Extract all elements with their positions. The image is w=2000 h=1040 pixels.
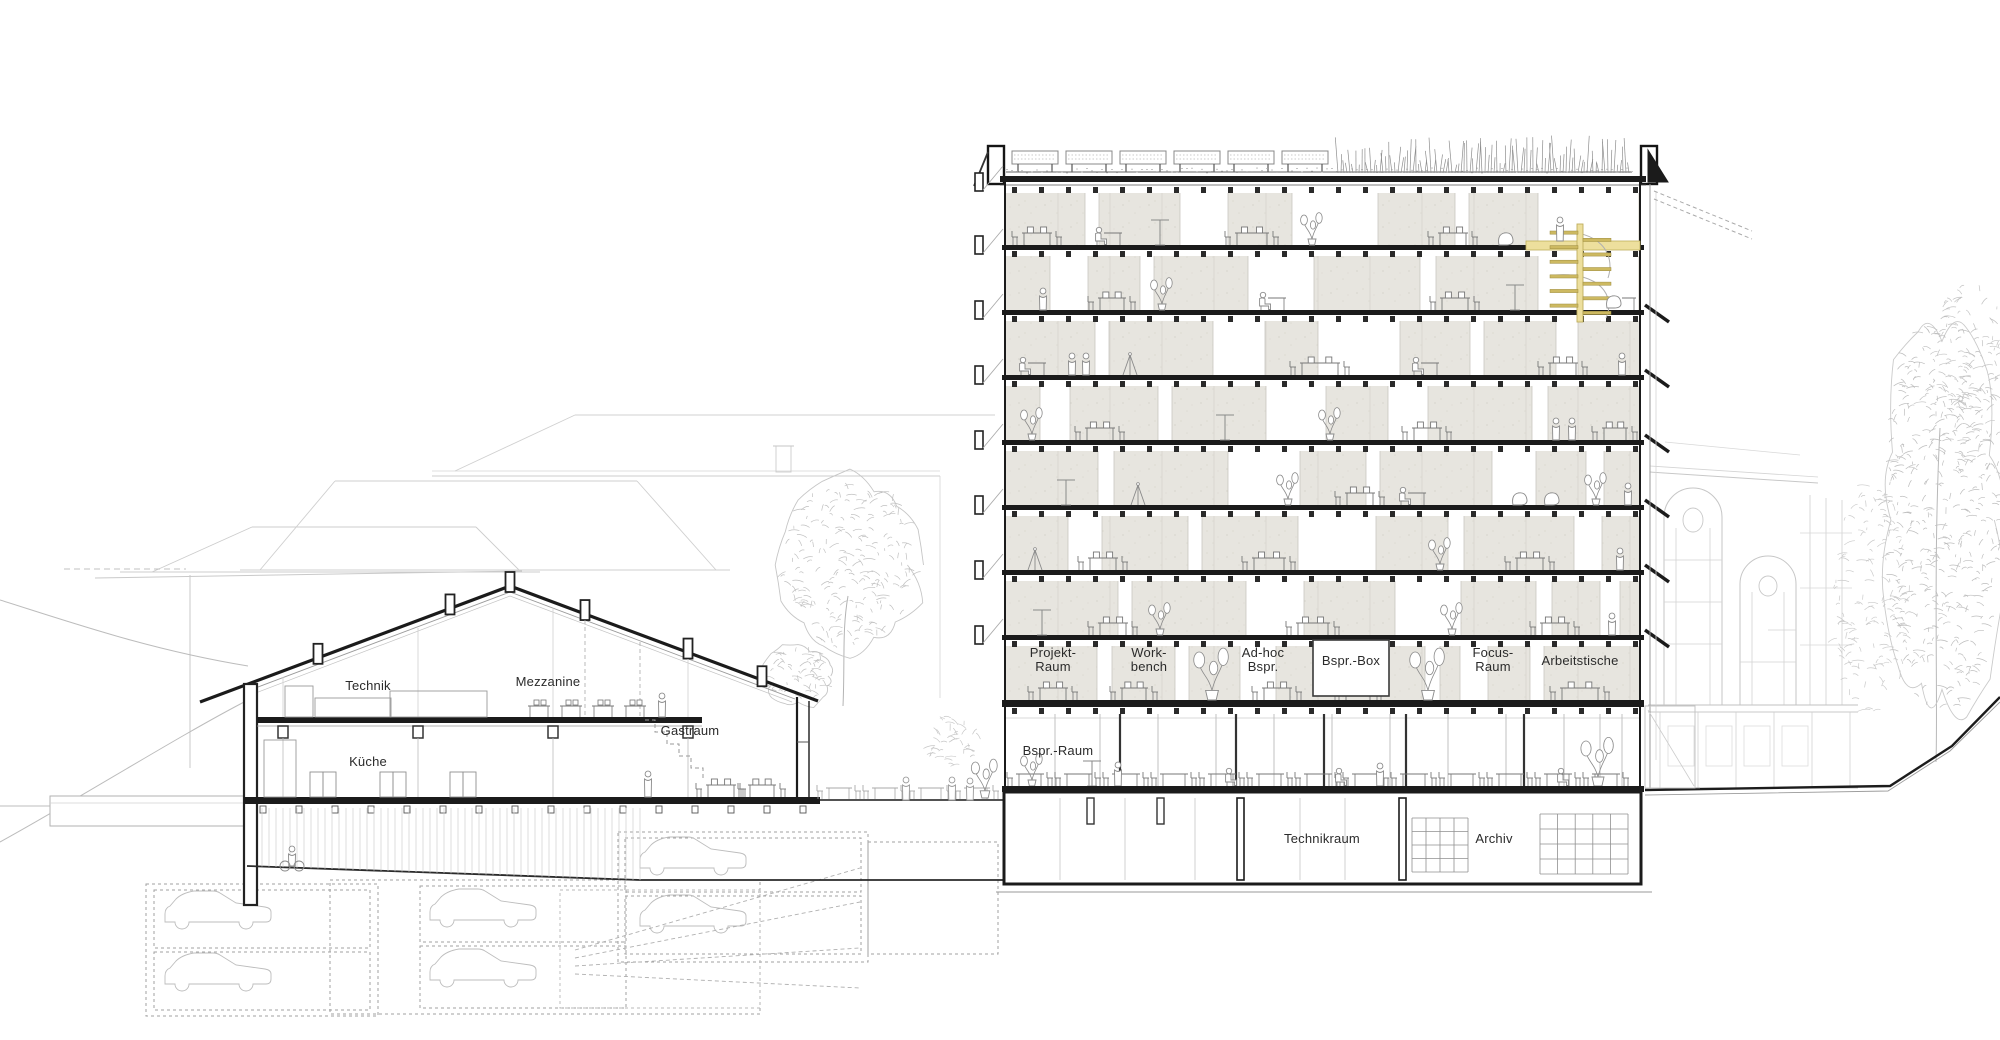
background-building-right	[1648, 442, 1858, 788]
label-workbench-1: Work-	[1131, 645, 1166, 660]
label-focus-raum-1: Focus-	[1473, 645, 1514, 660]
underground-parking	[146, 832, 998, 1016]
background-building-left	[64, 415, 995, 768]
label-technik: Technik	[345, 678, 391, 693]
label-bspr-box: Bspr.-Box	[1322, 653, 1380, 668]
label-adhoc-bspr-2: Bspr.	[1248, 659, 1279, 674]
label-arbeitstische: Arbeitstische	[1541, 653, 1618, 668]
label-workbench-2: bench	[1131, 659, 1167, 674]
label-bspr-raum: Bspr.-Raum	[1023, 743, 1094, 758]
label-technikraum: Technikraum	[1284, 831, 1360, 846]
label-mezzanine: Mezzanine	[516, 674, 581, 689]
section-drawing-canvas: Technik Mezzanine Küche Gastraum Projekt…	[0, 0, 2000, 1040]
left-building-section	[200, 572, 1004, 905]
label-projekt-raum-1: Projekt-	[1030, 645, 1076, 660]
label-projekt-raum-2: Raum	[1035, 659, 1070, 674]
label-gastraum: Gastraum	[661, 723, 720, 738]
label-focus-raum-2: Raum	[1475, 659, 1510, 674]
label-kueche: Küche	[349, 754, 387, 769]
label-adhoc-bspr-1: Ad-hoc	[1242, 645, 1285, 660]
building-section-svg: Technik Mezzanine Küche Gastraum Projekt…	[0, 0, 2000, 1040]
label-archiv: Archiv	[1475, 831, 1513, 846]
